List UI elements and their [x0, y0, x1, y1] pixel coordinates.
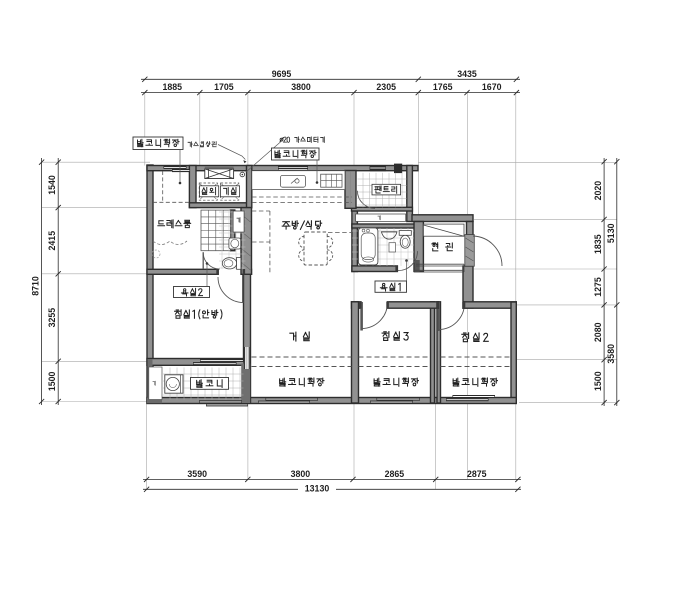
svg-text:2080: 2080 — [593, 322, 603, 342]
svg-text:3580: 3580 — [606, 344, 616, 364]
svg-text:2415: 2415 — [47, 231, 57, 251]
svg-text:5130: 5130 — [606, 223, 616, 243]
svg-text:9695: 9695 — [272, 69, 292, 79]
svg-text:1500: 1500 — [593, 371, 603, 391]
svg-text:3435: 3435 — [457, 69, 477, 79]
svg-text:1765: 1765 — [433, 82, 453, 92]
svg-text:1540: 1540 — [47, 175, 57, 195]
svg-text:2875: 2875 — [467, 469, 487, 479]
svg-text:3800: 3800 — [291, 82, 311, 92]
svg-text:1835: 1835 — [593, 234, 603, 254]
svg-text:2305: 2305 — [376, 82, 396, 92]
svg-text:1670: 1670 — [482, 82, 502, 92]
svg-text:3590: 3590 — [187, 469, 207, 479]
svg-text:1500: 1500 — [47, 372, 57, 392]
svg-text:2020: 2020 — [593, 181, 603, 201]
svg-text:3800: 3800 — [291, 469, 311, 479]
svg-text:13130: 13130 — [305, 483, 330, 493]
svg-text:1275: 1275 — [593, 277, 603, 297]
svg-text:1885: 1885 — [163, 82, 183, 92]
svg-text:3255: 3255 — [47, 308, 57, 328]
svg-text:1705: 1705 — [214, 82, 234, 92]
svg-text:2865: 2865 — [385, 469, 405, 479]
svg-text:8710: 8710 — [31, 276, 41, 296]
